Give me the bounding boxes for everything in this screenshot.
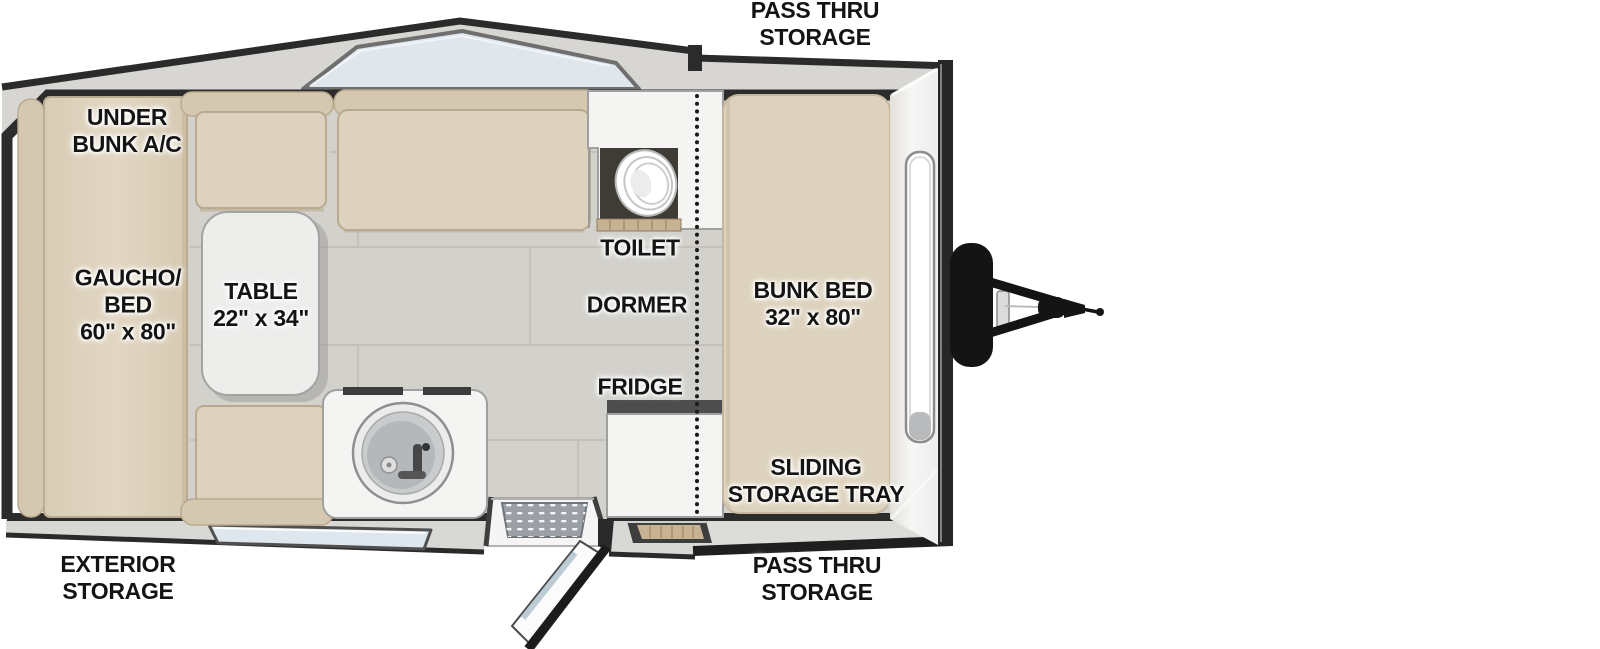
sink-cabinet	[323, 387, 487, 518]
floorplan-drawing	[0, 0, 1600, 649]
dinette-top-bench	[181, 92, 333, 210]
gaucho-bed	[18, 97, 187, 517]
trailer-hitch	[950, 243, 1104, 367]
sofa	[334, 90, 597, 231]
toilet-wood-trim	[597, 219, 681, 231]
bottom-exterior-wall	[6, 520, 952, 558]
propane-tongue-box	[950, 243, 993, 367]
floorplan-stage: PASS THRU STORAGE UNDER BUNK A/C GAUCHO/…	[0, 0, 1600, 649]
front-cap	[890, 60, 953, 546]
sink-icon	[353, 403, 453, 503]
toilet-cabinet	[588, 91, 723, 231]
pass-thru-access-hatch	[627, 521, 712, 543]
front-window	[906, 152, 934, 442]
wall-bolster	[18, 99, 44, 517]
entry-step-well	[486, 497, 609, 546]
dinette-table	[202, 212, 328, 402]
step-mat	[502, 503, 587, 537]
hitch-coupler	[1038, 297, 1104, 318]
fridge-cabinet	[607, 400, 723, 517]
bunk-bed	[723, 95, 890, 513]
dinette-bottom-bench	[181, 406, 333, 525]
